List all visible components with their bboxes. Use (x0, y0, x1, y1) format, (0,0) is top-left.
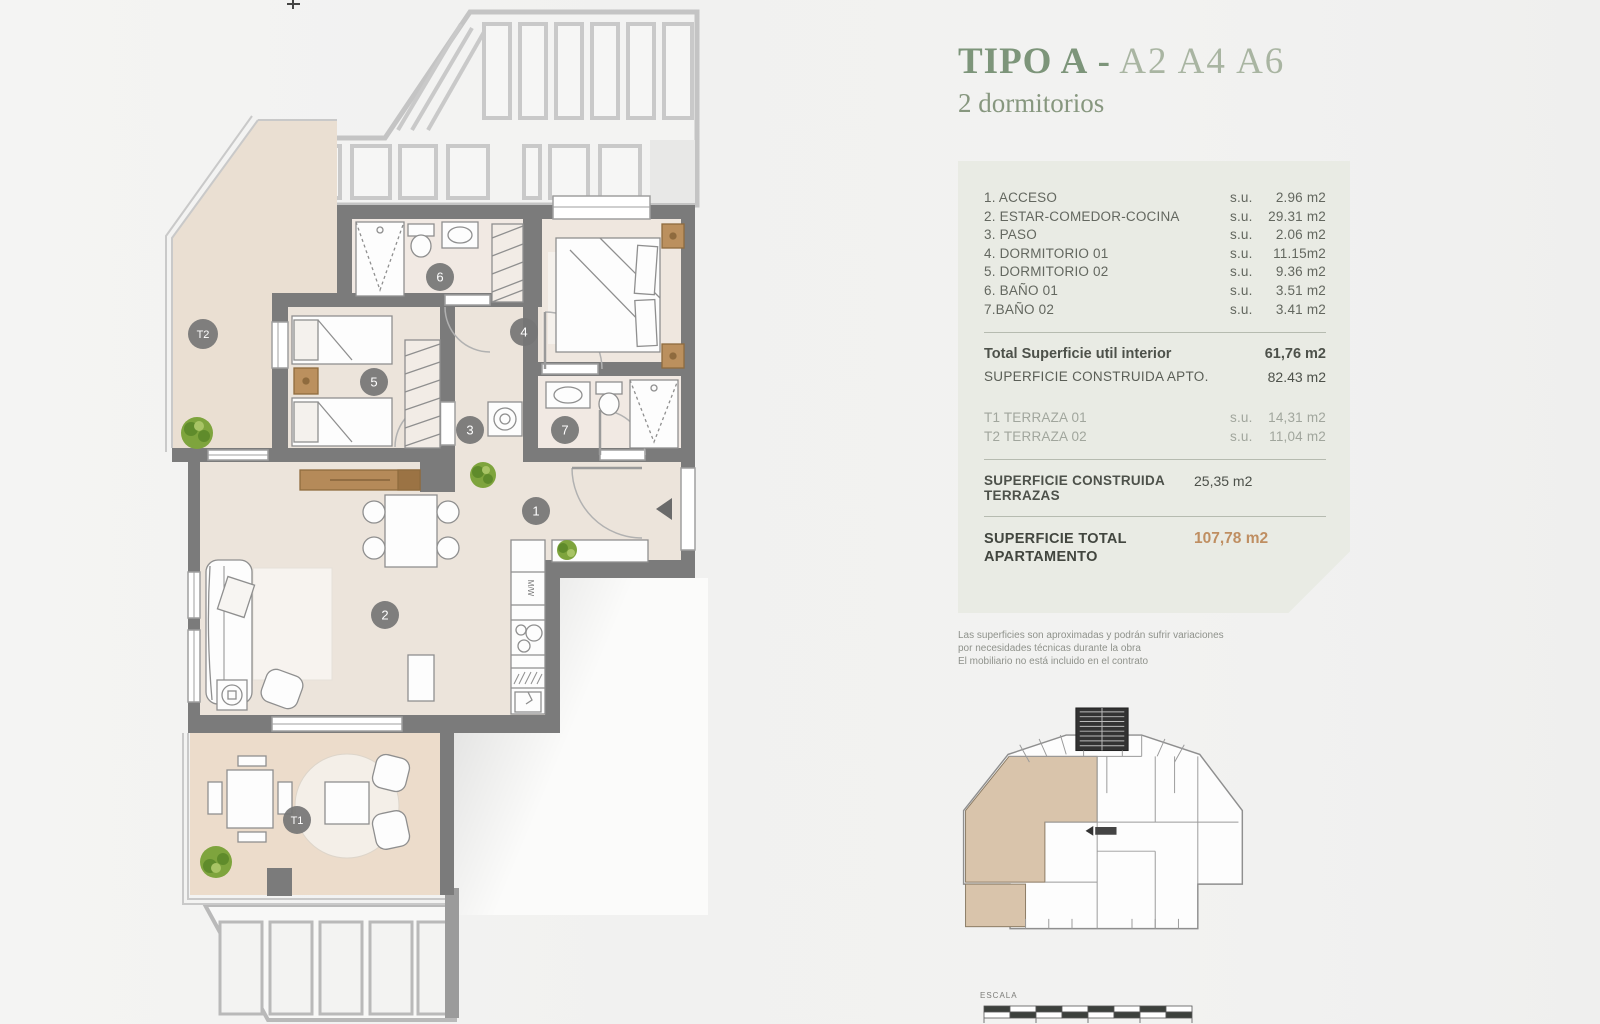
divider (984, 516, 1326, 517)
side-table-icon (217, 680, 247, 710)
single-bed-icon (292, 316, 392, 364)
title-block: TIPO A - A2 A4 A6 2 dormitorios (958, 42, 1394, 119)
svg-text:1: 1 (532, 504, 539, 519)
scale-bar: 0 1 2 3 4 (980, 1004, 1210, 1024)
room-badge: 4 (510, 318, 538, 346)
area-row: T1 TERRAZA 01s.u.14,31 m2 (984, 409, 1326, 428)
divider (984, 332, 1326, 333)
room-badge: 5 (360, 368, 388, 396)
living-rug (253, 568, 332, 680)
svg-text:7: 7 (561, 423, 568, 438)
svg-text:6: 6 (436, 270, 443, 285)
area-row: 5. DORMITORIO 02s.u.9.36 m2 (984, 263, 1326, 282)
area-row: 7.BAÑO 02s.u.3.41 m2 (984, 301, 1326, 320)
areas-card: 1. ACCESOs.u.2.96 m22. ESTAR-COMEDOR-COC… (958, 161, 1350, 613)
disclaimer-text: Las superficies son aproximadas y podrán… (958, 629, 1394, 668)
svg-text:T2: T2 (197, 329, 210, 341)
washing-machine-icon (488, 402, 522, 436)
neighbour-balcony-bottom (205, 905, 455, 1020)
closet-icon (405, 340, 440, 448)
room-badge: T1 (283, 806, 311, 834)
terraces-constructed-row: SUPERFICIE CONSTRUIDA TERRAZAS 25,35 m2 (984, 473, 1326, 503)
crop-mark (287, 0, 300, 9)
scale-label: ESCALA (980, 991, 1280, 1000)
terrace-list: T1 TERRAZA 01s.u.14,31 m2T2 TERRAZA 02s.… (984, 409, 1326, 446)
constructed-row: SUPERFICIE CONSTRUIDA APTO. 82.43 m2 (984, 369, 1326, 385)
info-panel: TIPO A - A2 A4 A6 2 dormitorios 1. ACCES… (958, 0, 1394, 1024)
room-badge: 1 (522, 497, 550, 525)
unit-codes: A2 A4 A6 (1119, 41, 1285, 82)
shower-icon (630, 380, 678, 448)
room-badge: 7 (551, 416, 579, 444)
svg-text:3: 3 (466, 423, 473, 438)
kitchen-sink-icon (515, 692, 541, 712)
kitchen-counter-icon (511, 540, 545, 714)
party-wall-stub (445, 888, 459, 1018)
room-badge: T2 (188, 319, 218, 349)
keyplan-entry-label-mark (1095, 827, 1116, 835)
double-bed-icon (556, 238, 660, 352)
page-subtitle: 2 dormitorios (958, 88, 1394, 119)
area-row: 3. PASOs.u.2.06 m2 (984, 226, 1326, 245)
toilet-icon (596, 382, 622, 415)
sideboard-icon (300, 470, 420, 490)
total-apartment-row: SUPERFICIE TOTAL APARTAMENTO 107,78 m2 (984, 530, 1326, 566)
kitchen-appliance-label: M/W (526, 580, 535, 597)
floor-plan: 1 2 3 4 5 6 7 T1 T2 M/W (0, 0, 940, 1024)
toilet-icon (408, 224, 434, 257)
plant-icon (557, 540, 577, 560)
nightstand-icon (294, 368, 318, 394)
svg-text:T1: T1 (291, 815, 304, 827)
svg-text:2: 2 (381, 608, 388, 623)
tv-bench (408, 655, 434, 701)
area-row: 6. BAÑO 01s.u.3.51 m2 (984, 282, 1326, 301)
wardrobe-icon (492, 224, 523, 302)
area-row: T2 TERRAZA 02s.u.11,04 m2 (984, 428, 1326, 447)
room-badge: 2 (371, 601, 399, 629)
room-badge: 6 (426, 263, 454, 291)
plant-icon (181, 417, 213, 449)
svg-text:5: 5 (370, 375, 377, 390)
page-title: TIPO A - A2 A4 A6 (958, 42, 1394, 82)
total-util-row: Total Superficie util interior 61,76 m2 (984, 346, 1326, 362)
stair-core-icon (1076, 708, 1128, 751)
sink-icon (442, 222, 478, 248)
room-list: 1. ACCESOs.u.2.96 m22. ESTAR-COMEDOR-COC… (984, 189, 1326, 319)
type-label: TIPO A (958, 41, 1088, 82)
shower-icon (356, 222, 404, 296)
single-bed-icon (292, 398, 392, 446)
key-plan (952, 702, 1252, 952)
divider (984, 459, 1326, 460)
brochure-page: 1 2 3 4 5 6 7 T1 T2 M/W TIPO A - A (0, 0, 1600, 1024)
plant-icon (470, 462, 496, 488)
area-row: 4. DORMITORIO 01s.u.11.15m2 (984, 245, 1326, 264)
scale-block: ESCALA 0 (980, 991, 1280, 1024)
area-row: 2. ESTAR-COMEDOR-COCINAs.u.29.31 m2 (984, 208, 1326, 227)
plant-icon (200, 846, 232, 878)
svg-text:4: 4 (520, 325, 527, 340)
coffee-table-icon (325, 782, 369, 824)
area-row: 1. ACCESOs.u.2.96 m2 (984, 189, 1326, 208)
sink-icon (546, 382, 590, 408)
neighbour-unit-top (308, 12, 697, 205)
room-badge: 3 (456, 416, 484, 444)
total-value: 107,78 m2 (1194, 530, 1268, 548)
